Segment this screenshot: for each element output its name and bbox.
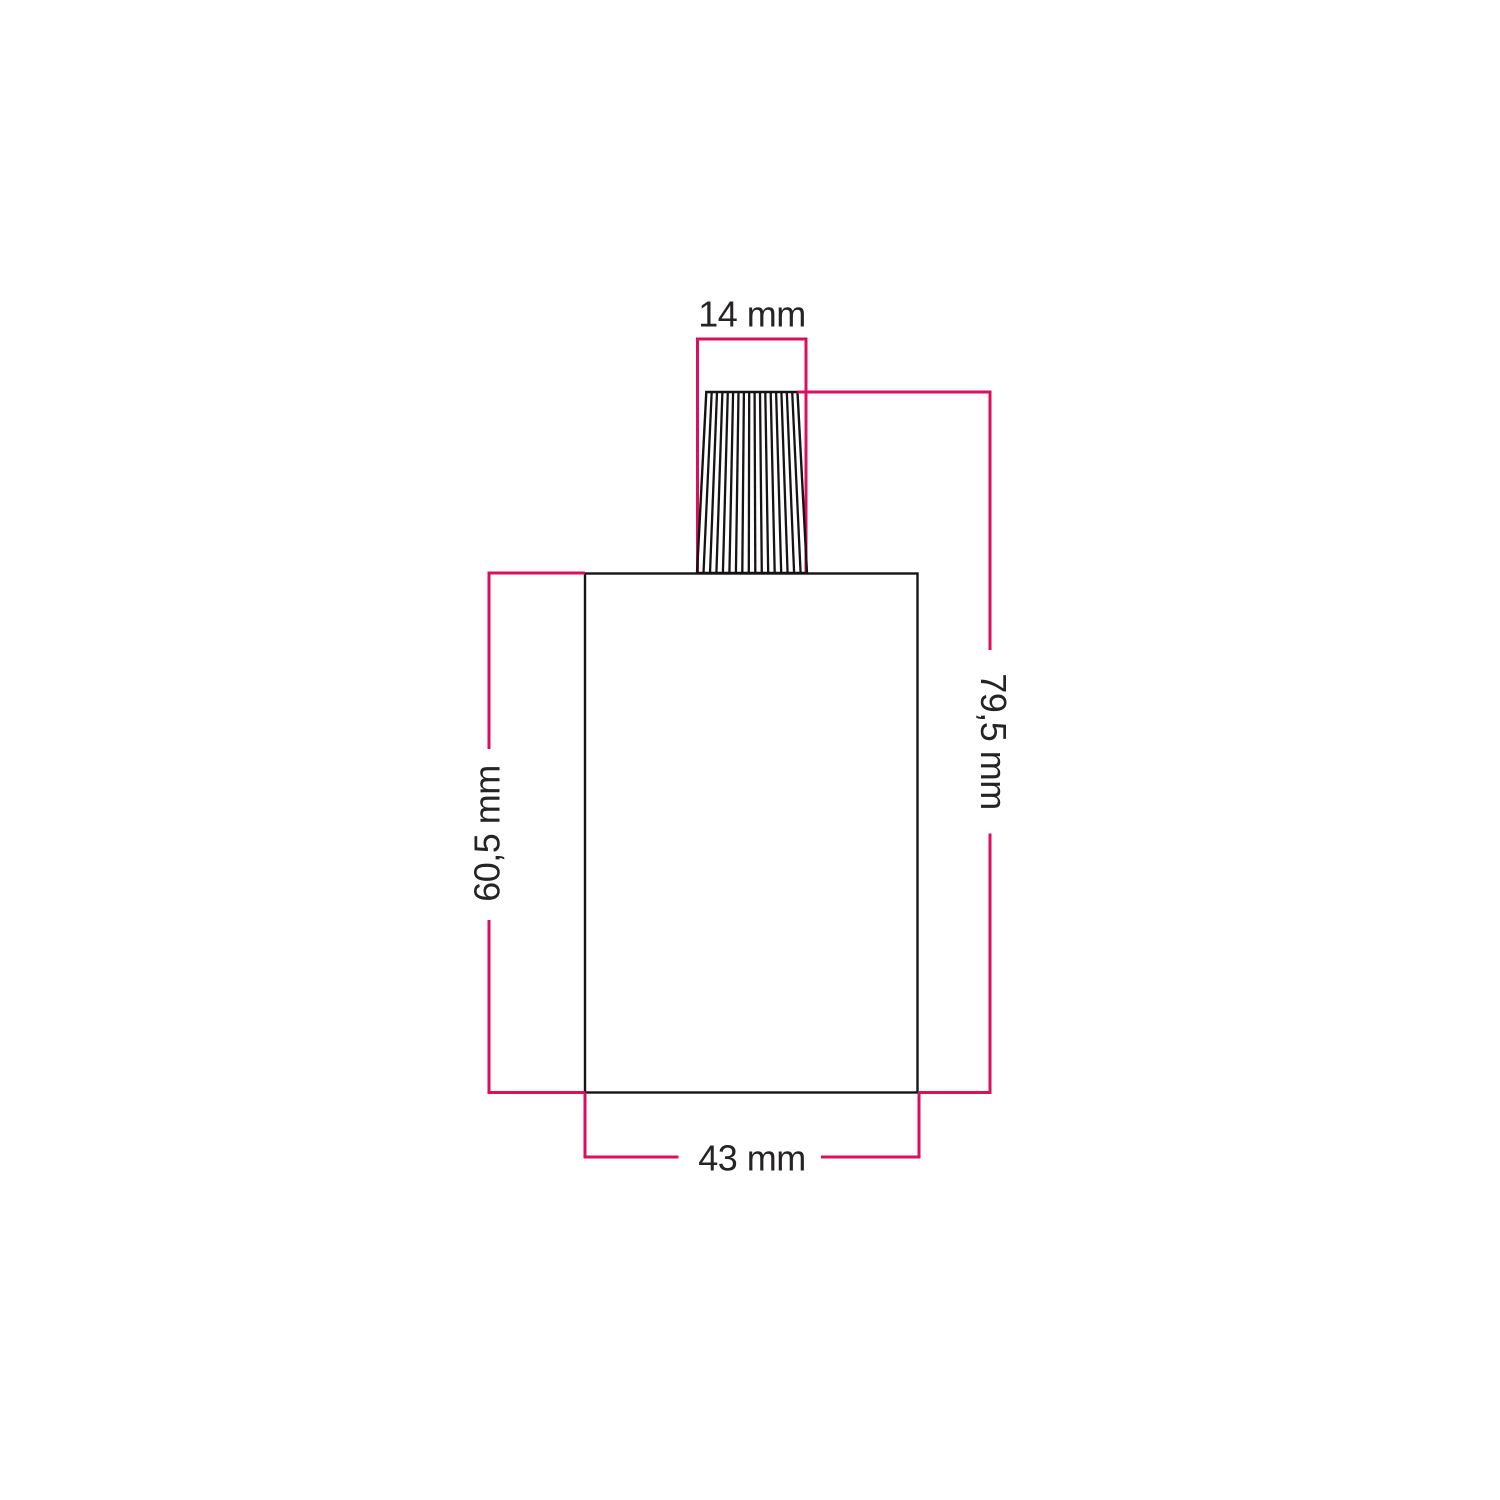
svg-text:43 mm: 43 mm xyxy=(698,1138,806,1179)
svg-text:60,5 mm: 60,5 mm xyxy=(467,765,508,902)
svg-text:79,5 mm: 79,5 mm xyxy=(973,673,1014,810)
svg-text:14 mm: 14 mm xyxy=(698,294,806,335)
